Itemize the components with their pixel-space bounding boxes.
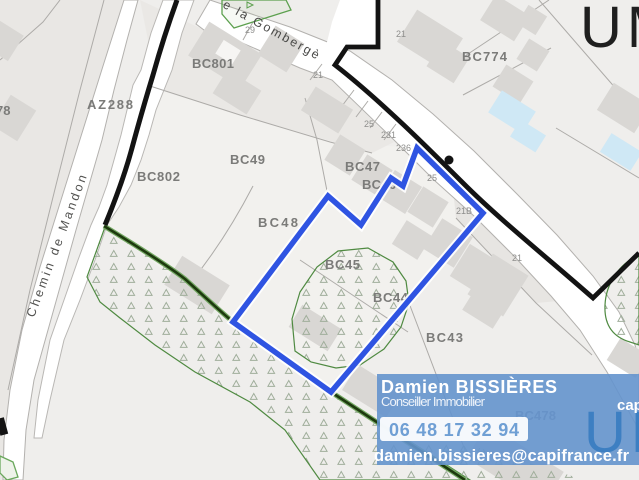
- svg-text:231: 231: [381, 130, 396, 140]
- svg-text:damien.bissieres@capifrance.fr: damien.bissieres@capifrance.fr: [374, 447, 630, 465]
- svg-text:06 48 17 32 94: 06 48 17 32 94: [389, 420, 519, 440]
- svg-text:BC802: BC802: [137, 169, 180, 184]
- svg-text:BC47: BC47: [345, 159, 380, 174]
- svg-text:21: 21: [313, 70, 323, 80]
- svg-text:BC49: BC49: [230, 152, 265, 167]
- svg-text:cap: cap: [617, 397, 639, 414]
- svg-text:BC45: BC45: [325, 257, 360, 272]
- svg-text:21: 21: [396, 29, 406, 39]
- svg-text:BC43: BC43: [426, 330, 463, 345]
- svg-text:BC774: BC774: [462, 49, 508, 64]
- svg-text:25: 25: [364, 119, 374, 129]
- svg-text:Conseiller Immobilier: Conseiller Immobilier: [381, 394, 486, 409]
- svg-text:78: 78: [0, 103, 10, 118]
- svg-text:21B: 21B: [456, 206, 472, 216]
- svg-text:BC801: BC801: [192, 56, 234, 71]
- svg-text:AZ288: AZ288: [87, 97, 133, 112]
- svg-text:UM: UM: [580, 0, 639, 60]
- svg-text:236: 236: [396, 143, 411, 153]
- svg-text:21: 21: [512, 253, 522, 263]
- svg-text:BC48: BC48: [258, 215, 298, 230]
- svg-text:25: 25: [427, 173, 437, 183]
- svg-text:29: 29: [245, 25, 255, 35]
